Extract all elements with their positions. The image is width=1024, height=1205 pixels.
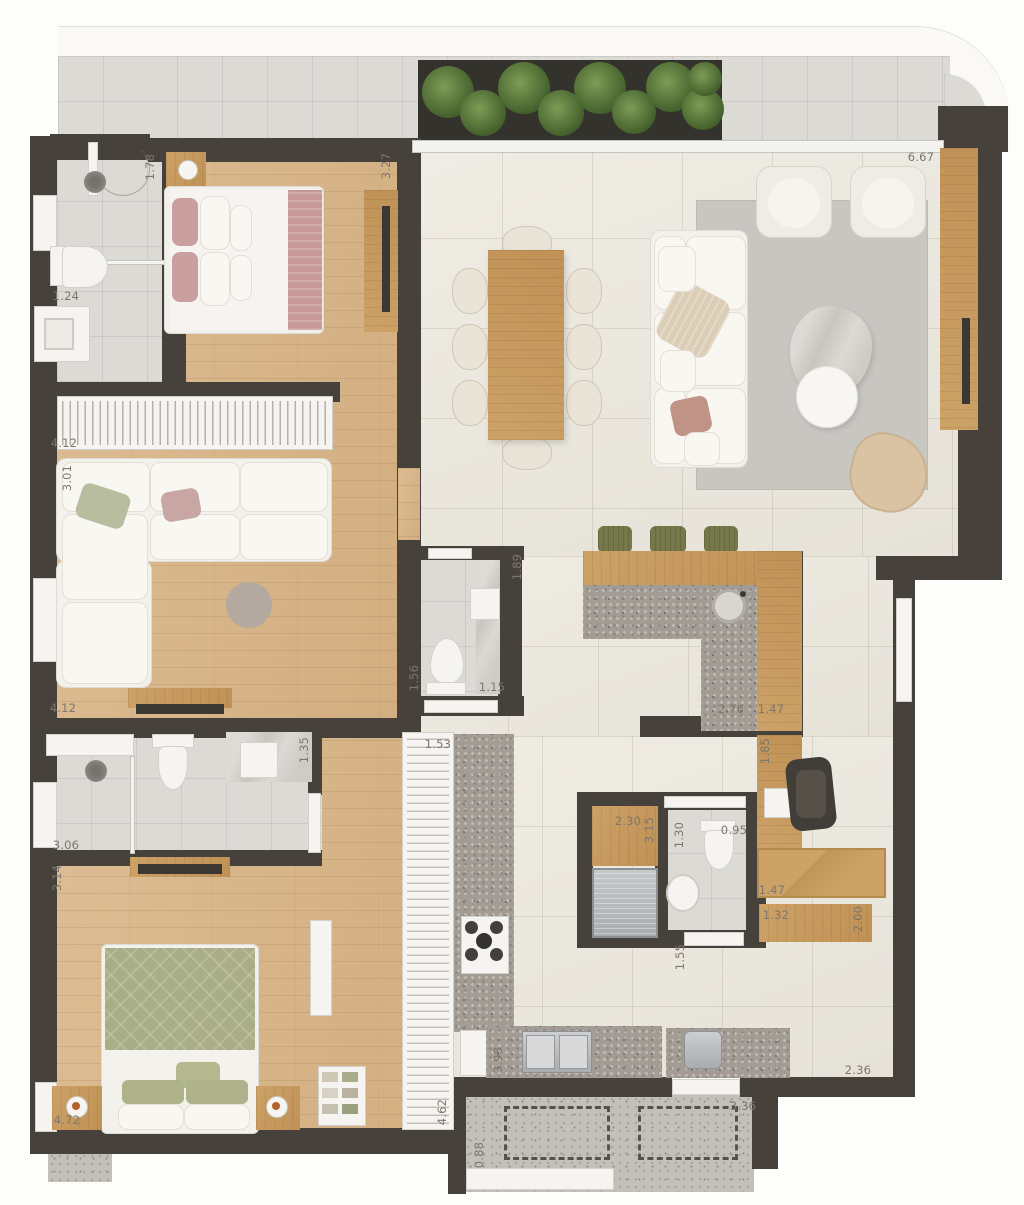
dimension-label: 3.06 — [53, 838, 79, 852]
dimension-label: 0.88 — [472, 1142, 486, 1168]
dimension-label: 4.12 — [51, 436, 77, 450]
dimension-label: 3.01 — [60, 465, 74, 491]
dimension-label: 1.78 — [143, 154, 157, 180]
dimension-label: 1.47 — [759, 883, 785, 897]
dimension-label: 2.00 — [851, 906, 865, 932]
dimension-label: 1.47 — [758, 702, 784, 716]
dimension-label: 3.27 — [379, 153, 393, 179]
dimension-label: 3.36 — [730, 1099, 756, 1113]
dimension-label: 1.24 — [53, 289, 79, 303]
dimension-label: 1.56 — [407, 665, 421, 691]
dimension-label: 1.30 — [672, 822, 686, 848]
dimension-label: 1.55 — [673, 944, 687, 970]
dimension-label: 4.62 — [435, 1099, 449, 1125]
dimension-label: 1.85 — [758, 738, 772, 764]
dimension-label: 1.35 — [297, 737, 311, 763]
dimension-label: 4.12 — [50, 701, 76, 715]
dimension-label: 6.67 — [908, 150, 934, 164]
dimension-label: 2.76 — [718, 702, 744, 716]
dimension-label: 1.15 — [479, 680, 505, 694]
dimension-label: 1.89 — [510, 554, 524, 580]
dimension-label: 3.14 — [50, 865, 64, 891]
floor-plan: 1.781.243.276.674.123.011.891.561.152.76… — [0, 0, 1024, 1205]
dimension-label: 3.15 — [642, 817, 656, 843]
dimension-labels-layer: 1.781.243.276.674.123.011.891.561.152.76… — [0, 0, 1024, 1205]
dimension-label: 0.95 — [721, 823, 747, 837]
dimension-label: 4.72 — [54, 1113, 80, 1127]
dimension-label: 1.53 — [425, 737, 451, 751]
dimension-label: 1.32 — [763, 908, 789, 922]
dimension-label: 3.98 — [491, 1047, 505, 1073]
dimension-label: 2.30 — [615, 814, 641, 828]
dimension-label: 2.36 — [845, 1063, 871, 1077]
